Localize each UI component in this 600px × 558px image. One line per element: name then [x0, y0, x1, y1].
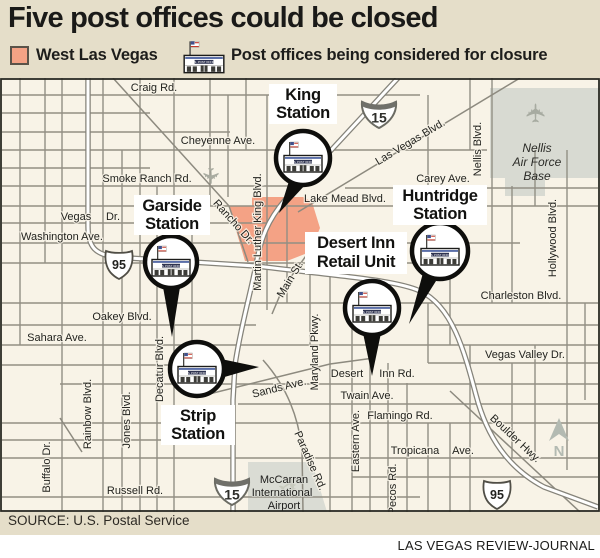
svg-text:Retail Unit: Retail Unit [317, 253, 396, 271]
road-label-desert: Desert [331, 368, 363, 380]
svg-text:Station: Station [171, 425, 225, 443]
credit-line: LAS VEGAS REVIEW-JOURNAL [398, 538, 595, 553]
svg-text:Station: Station [145, 215, 199, 233]
road-label-twain: Twain Ave. [341, 390, 394, 402]
road-label-pecos: Pecos Rd. [387, 464, 399, 512]
page-title: Five post offices could be closed [8, 2, 592, 35]
legend: West Las Vegas Post offices being consid… [0, 38, 600, 78]
svg-text:N: N [554, 443, 565, 460]
map-svg: U.S. POST OFFICE 15 95 ✈ [0, 78, 600, 512]
post-office-icon [180, 36, 228, 78]
road-label-mlk: Martin Luther King Blvd. [252, 173, 264, 290]
map: U.S. POST OFFICE 15 95 ✈ [0, 78, 600, 512]
road-label-vegas-dr: Dr. [106, 211, 120, 223]
road-label-tropicana-ave: Ave. [452, 445, 474, 457]
legend-closure-label: Post offices being considered for closur… [231, 46, 547, 65]
garside-station-label: Garside Station [134, 195, 210, 235]
svg-text:McCarran: McCarran [260, 474, 308, 486]
desert-inn-station-marker [345, 281, 399, 335]
svg-text:Desert Inn: Desert Inn [317, 234, 395, 252]
huntridge-station-marker [412, 223, 468, 279]
svg-text:International: International [252, 487, 313, 499]
svg-text:Huntridge: Huntridge [402, 187, 477, 205]
west-las-vegas-swatch [10, 46, 29, 65]
road-label-cheyenne: Cheyenne Ave. [181, 135, 255, 147]
road-label-buffalo: Buffalo Dr. [41, 441, 53, 492]
nellis-jet-icon: ✈ [521, 102, 551, 124]
road-label-decatur: Decatur Blvd. [154, 336, 166, 402]
road-label-lake-mead: Lake Mead Blvd. [304, 193, 386, 205]
strip-station-label: Strip Station [161, 405, 235, 445]
road-label-nellis: Nellis Blvd. [472, 122, 484, 176]
road-label-russell: Russell Rd. [107, 485, 163, 497]
road-label-washington: Washington Ave. [21, 231, 103, 243]
king-station-marker [276, 131, 330, 185]
road-label-sahara: Sahara Ave. [27, 332, 87, 344]
road-label-oakey: Oakey Blvd. [92, 311, 151, 323]
road-label-flamingo: Flamingo Rd. [367, 410, 432, 422]
road-label-vegas: Vegas [61, 211, 92, 223]
road-label-inn-rd: Inn Rd. [379, 368, 414, 380]
svg-text:Station: Station [276, 104, 330, 122]
road-label-jones: Jones Blvd. [121, 392, 133, 449]
road-label-hollywood: Hollywood Blvd. [547, 199, 559, 277]
road-label-rainbow: Rainbow Blvd. [82, 379, 94, 449]
desert-inn-station-label: Desert Inn Retail Unit [305, 232, 407, 274]
svg-text:Base: Base [523, 169, 551, 183]
svg-text:King: King [285, 86, 320, 104]
huntridge-station-label: Huntridge Station [393, 185, 487, 225]
road-label-vegas-valley: Vegas Valley Dr. [485, 349, 565, 361]
source-line: SOURCE: U.S. Postal Service [8, 513, 190, 528]
strip-station-marker [170, 342, 224, 396]
king-station-label: King Station [269, 84, 337, 124]
svg-text:Garside: Garside [142, 197, 201, 215]
road-label-tropicana: Tropicana [391, 445, 440, 457]
road-label-smoke-ranch: Smoke Ranch Rd. [102, 173, 191, 185]
road-label-craig: Craig Rd. [131, 82, 177, 94]
svg-text:Air Force: Air Force [512, 155, 562, 169]
road-label-charleston: Charleston Blvd. [481, 290, 562, 302]
road-label-maryland: Maryland Pkwy. [309, 314, 321, 391]
legend-west-las-vegas-label: West Las Vegas [36, 46, 158, 65]
svg-text:Nellis: Nellis [522, 141, 551, 155]
svg-text:Station: Station [413, 205, 467, 223]
road-label-eastern: Eastern Ave. [350, 410, 362, 472]
road-label-carey: Carey Ave. [416, 173, 470, 185]
svg-text:Strip: Strip [180, 407, 216, 425]
garside-station-marker [145, 236, 197, 288]
small-airport-plane-icon: ✈ [198, 167, 223, 185]
